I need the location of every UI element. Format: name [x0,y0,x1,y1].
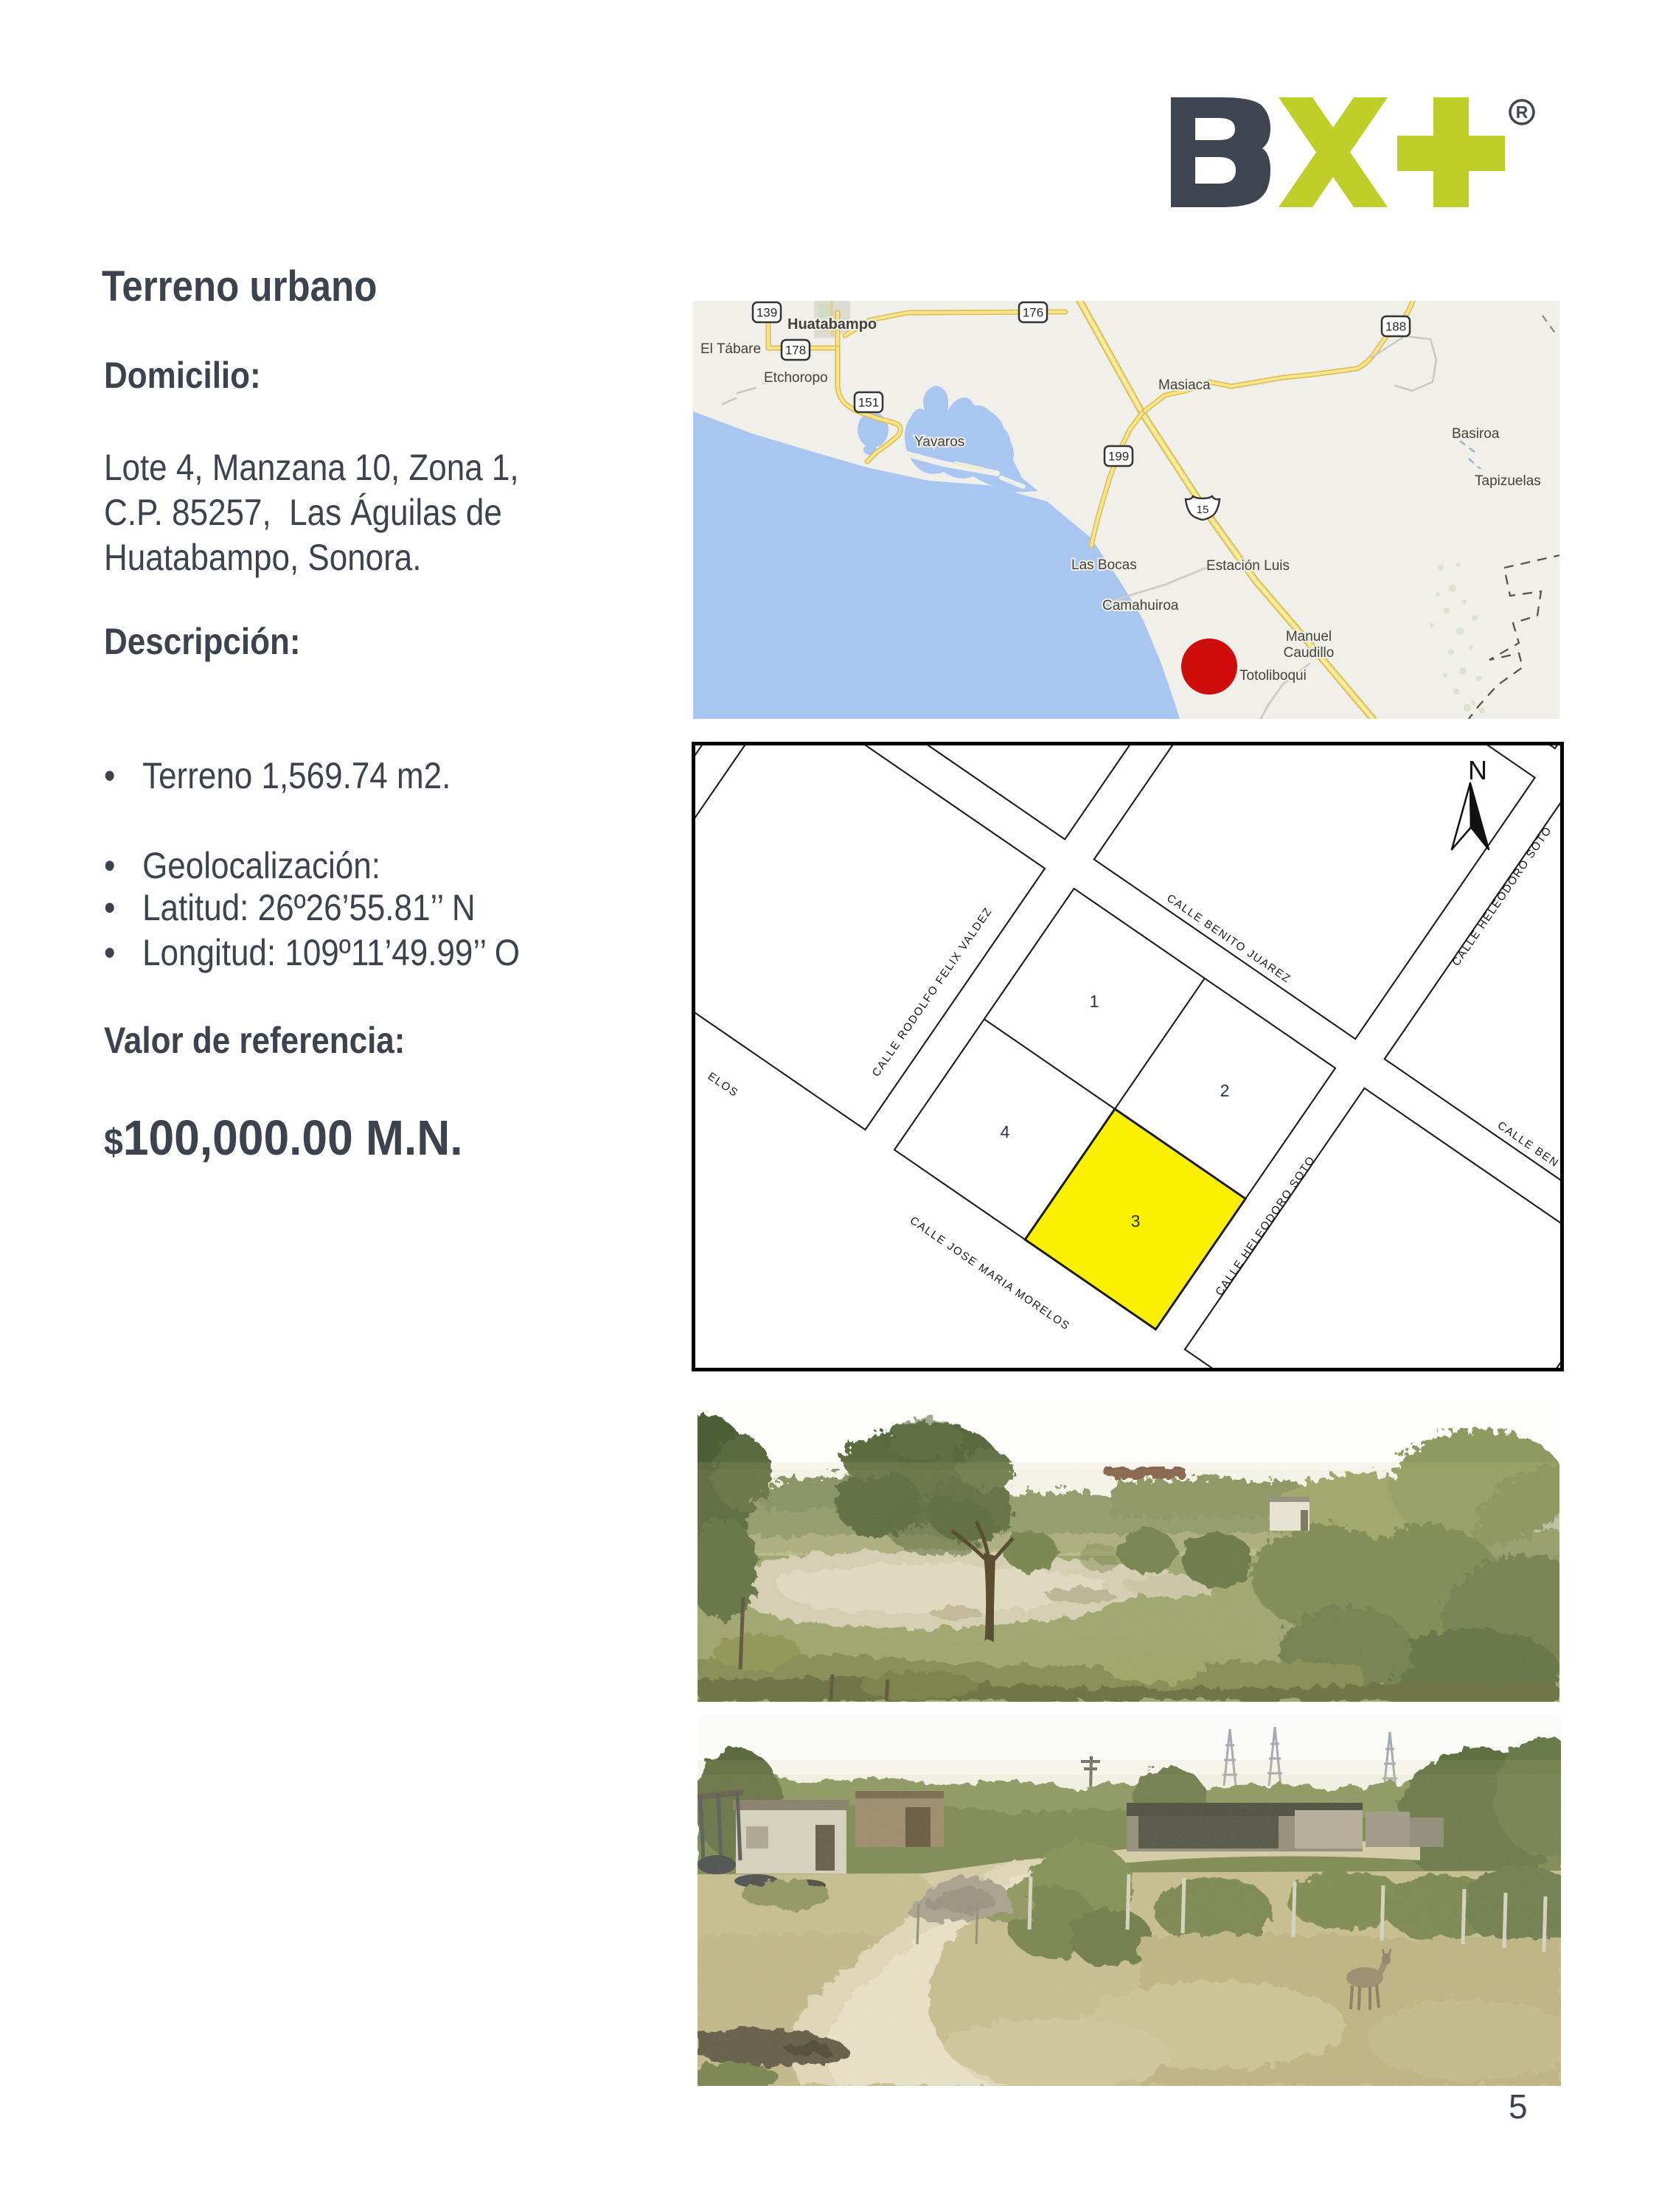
svg-text:3: 3 [1131,1211,1141,1231]
svg-text:Estación Luis: Estación Luis [1206,558,1290,574]
svg-text:Caudillo: Caudillo [1284,645,1335,661]
svg-text:Basiroa: Basiroa [1452,426,1500,442]
svg-text:199: 199 [1108,450,1129,464]
svg-text:4: 4 [1001,1122,1010,1141]
svg-text:N: N [1468,755,1487,785]
svg-text:188: 188 [1385,320,1406,334]
svg-text:Tapizuelas: Tapizuelas [1475,473,1541,489]
svg-text:Yavaros: Yavaros [914,434,964,450]
svg-text:R: R [1516,102,1528,122]
svg-text:151: 151 [858,396,879,410]
svg-text:Huatabampo: Huatabampo [787,316,877,333]
svg-text:176: 176 [1023,306,1043,320]
svg-text:2: 2 [1220,1081,1230,1100]
svg-text:Etchoropo: Etchoropo [764,370,828,386]
svg-text:Las Bocas: Las Bocas [1071,557,1137,573]
svg-text:El Tábare: El Tábare [700,341,761,357]
svg-text:Manuel: Manuel [1286,629,1332,644]
svg-text:178: 178 [785,344,806,358]
svg-text:Totoliboqui: Totoliboqui [1239,668,1307,684]
svg-text:Masiaca: Masiaca [1158,378,1211,393]
svg-text:139: 139 [757,306,777,320]
svg-text:Camahuiroa: Camahuiroa [1102,598,1179,613]
svg-text:1: 1 [1090,992,1099,1011]
svg-text:15: 15 [1197,504,1209,516]
